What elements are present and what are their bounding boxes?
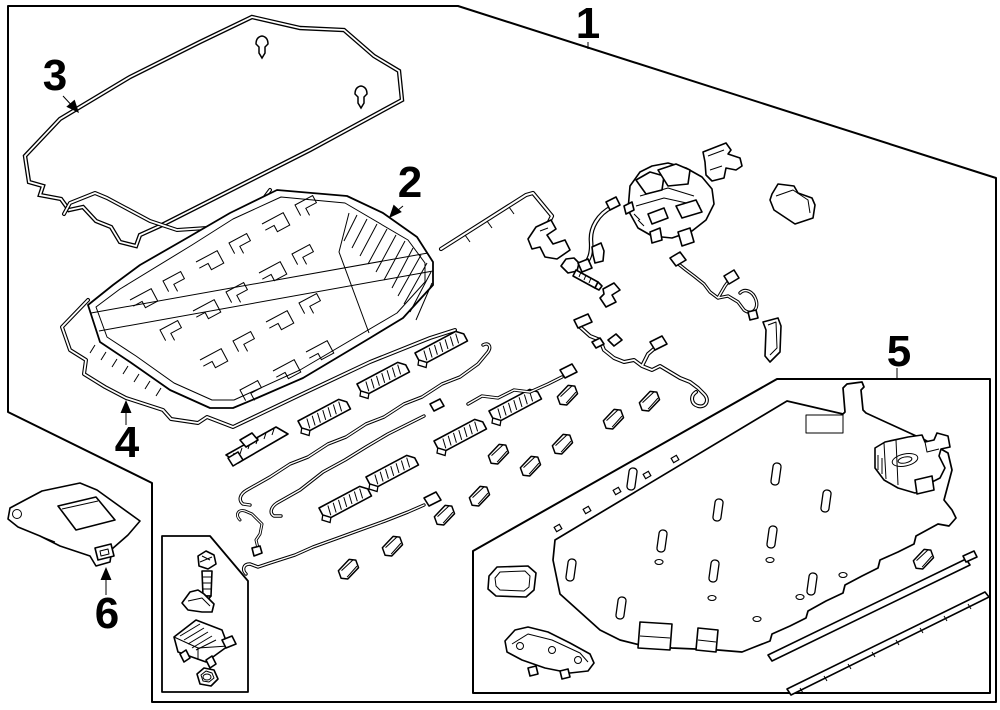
- harness-clip: [601, 407, 626, 431]
- callout-4-arrowhead: [121, 400, 132, 413]
- callout-6-arrowhead: [101, 567, 112, 580]
- harness-clip: [467, 484, 492, 508]
- case-gasket-ring: [488, 566, 536, 597]
- cable-connector: [424, 492, 441, 506]
- rail-clip: [911, 547, 936, 571]
- bracket-upper-b: [770, 184, 815, 224]
- exploded-view-drawing: 1 2 3 4 5 6: [0, 0, 1000, 710]
- busbar-strip: [316, 484, 373, 526]
- main-harness: [574, 314, 707, 406]
- harness-clip: [380, 534, 405, 558]
- busbar-strip: [295, 397, 352, 439]
- hardware-inset-box: [162, 536, 248, 692]
- part-6-mounting-bracket: [8, 483, 140, 566]
- busbar-strip: [486, 387, 543, 429]
- harness-clip: [550, 432, 575, 456]
- relay-block: [174, 620, 236, 668]
- harness-clip: [637, 389, 662, 413]
- harness-clip: [555, 383, 580, 407]
- callout-5: 5: [887, 327, 911, 376]
- callout-6: 6: [95, 589, 119, 638]
- hook-clip: [600, 283, 620, 307]
- harness-clip: [336, 557, 361, 581]
- tall-flag-bracket: [763, 318, 781, 362]
- junction-box-cable: [578, 197, 620, 272]
- harness-clip: [518, 454, 543, 478]
- harness-clip: [432, 503, 457, 527]
- case-foot-bracket: [505, 627, 594, 679]
- callout-1: 1: [576, 0, 600, 48]
- harness-clip: [486, 442, 511, 466]
- part-5-lower-case-group: [473, 368, 990, 695]
- busbar-strip: [431, 417, 488, 459]
- callout-3: 3: [43, 51, 67, 100]
- j-clamp-wire: [238, 511, 262, 556]
- callout-2: 2: [398, 158, 422, 207]
- junction-box: [624, 163, 714, 246]
- bracket-upper-a: [703, 143, 742, 181]
- hex-nut: [197, 668, 218, 686]
- parts-diagram-canvas: 1 2 3 4 5 6: [0, 0, 1000, 710]
- busbar-strip: [363, 453, 420, 495]
- cross-bracket: [226, 427, 288, 466]
- callout-4: 4: [115, 418, 140, 467]
- sub-harness-a: [670, 252, 758, 320]
- cable-connector: [430, 399, 444, 411]
- z-bracket: [528, 220, 570, 259]
